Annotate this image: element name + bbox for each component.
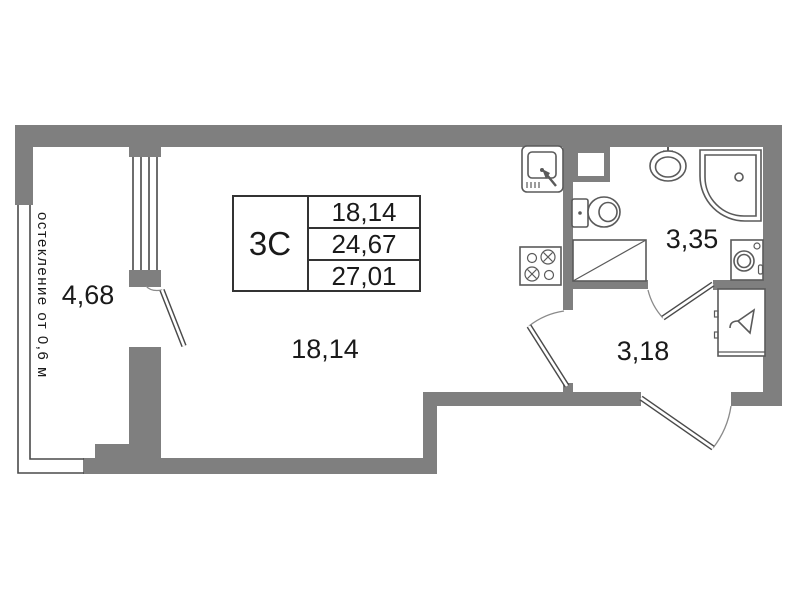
glazing-note: остекление от 0,6 м: [34, 212, 51, 379]
wall: [129, 270, 161, 287]
floor-plan-page: 3С 18,14 24,67 27,01 4,68 18,14 3,35 3,1…: [0, 0, 799, 600]
wall: [129, 125, 161, 157]
washer-outline: [731, 240, 763, 280]
door-leaf: [529, 326, 567, 386]
area-row-value: 18,14: [331, 197, 396, 227]
wall: [763, 125, 782, 406]
wall: [95, 444, 130, 458]
main-room-door-swing-icon: [529, 311, 567, 386]
window-icon: [133, 157, 157, 270]
door-leaf: [663, 284, 713, 318]
entrance-door-swing-icon: [641, 398, 731, 448]
balcony-area-label: 4,68: [62, 280, 115, 310]
wardrobe-hinge: [715, 311, 719, 317]
wall: [731, 392, 782, 406]
area-row-value: 27,01: [331, 261, 396, 291]
unit-info-table: 3С 18,14 24,67 27,01: [233, 196, 420, 291]
toilet-bowl: [588, 197, 620, 227]
corner-bath-icon: [700, 150, 761, 221]
bath-outline: [700, 150, 761, 221]
door-arc: [648, 290, 663, 318]
wall: [15, 125, 33, 205]
unit-type-label: 3С: [249, 225, 291, 262]
floor-plan: 3С 18,14 24,67 27,01 4,68 18,14 3,35 3,1…: [0, 0, 799, 600]
hallway-area-label: 3,18: [617, 336, 670, 366]
area-row-value: 24,67: [331, 229, 396, 259]
door-arc: [529, 311, 564, 326]
door-leaf: [641, 398, 713, 448]
washbasin-icon: [650, 147, 686, 181]
wall: [423, 392, 641, 406]
bathroom-door-swing-icon: [648, 284, 713, 318]
door-arc: [713, 406, 731, 448]
washing-machine-icon: [731, 240, 763, 280]
cabinet-icon: [573, 240, 646, 281]
wardrobe-hinge: [715, 332, 719, 338]
vent-shaft-icon: [575, 150, 607, 179]
toilet-icon: [572, 197, 620, 227]
wardrobe-icon: [715, 289, 766, 356]
toilet-button: [578, 211, 582, 215]
kitchen-sink-icon: [522, 146, 563, 192]
wardrobe-outline: [718, 289, 765, 356]
wall: [83, 458, 437, 474]
stove-icon: [520, 247, 561, 285]
stove-outline: [520, 247, 561, 285]
wall: [129, 347, 161, 458]
balcony-door-swing-icon: [146, 286, 184, 346]
bathroom-area-label: 3,35: [666, 224, 719, 254]
main-room-area-label: 18,14: [291, 334, 359, 364]
door-leaf: [162, 290, 184, 346]
